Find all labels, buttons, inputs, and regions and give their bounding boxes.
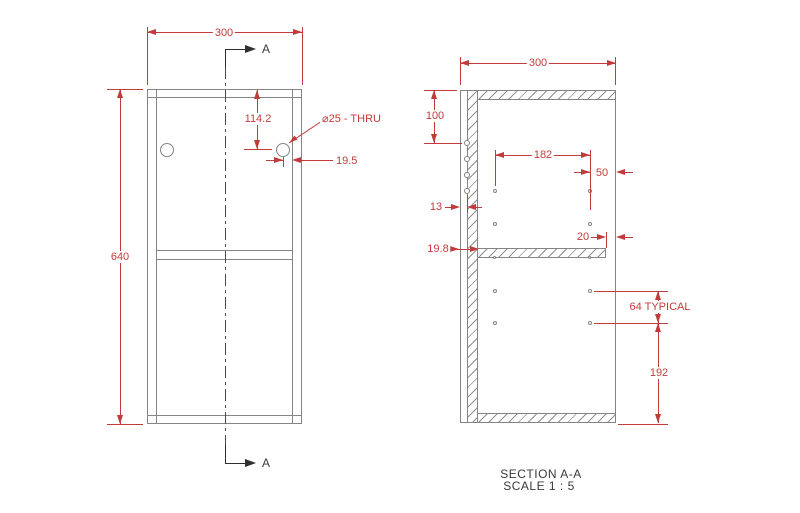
shelf-pin-hole bbox=[493, 321, 497, 325]
extension-line bbox=[302, 27, 303, 85]
arrowhead-up bbox=[655, 291, 661, 300]
extension-line bbox=[424, 143, 462, 144]
arrowhead-up bbox=[655, 323, 661, 332]
shelf-pin-hole bbox=[493, 189, 497, 193]
arrowhead-right bbox=[450, 246, 459, 252]
section-back-outer-line bbox=[460, 90, 461, 423]
arrowhead-right bbox=[581, 169, 590, 175]
shelf-pin-hole bbox=[588, 289, 592, 293]
dimension-tail-right bbox=[301, 160, 333, 161]
dimension-text: 192 bbox=[648, 367, 670, 379]
extension-line bbox=[606, 232, 607, 248]
section-arrow-bottom-stem bbox=[225, 463, 245, 464]
dimension-text: 19.8 bbox=[425, 243, 450, 255]
shelf-pin-hole bbox=[493, 222, 497, 226]
section-line-dashdot bbox=[225, 67, 226, 445]
dimension-text: 114.2 bbox=[243, 113, 274, 125]
shelf-pin-hole bbox=[588, 222, 592, 226]
arrowhead-up bbox=[431, 90, 437, 99]
arrowhead-right bbox=[607, 60, 616, 66]
section-caption-scale: SCALE 1 : 5 bbox=[503, 479, 575, 493]
extension-line bbox=[590, 150, 591, 210]
shelf-pin-hole bbox=[493, 289, 497, 293]
dimension-tail-right bbox=[625, 237, 633, 238]
section-arrow-bottom-head bbox=[245, 459, 256, 467]
arrowhead-left bbox=[495, 152, 504, 158]
callout-text: ⌀25 - THRU bbox=[320, 113, 383, 125]
shelf-underside-hole bbox=[493, 256, 496, 259]
arrowhead-right bbox=[451, 204, 460, 210]
section-arrow-bottom-label: A bbox=[261, 456, 271, 470]
section-bottom-panel-hatched bbox=[477, 413, 616, 423]
arrowhead-down bbox=[655, 414, 661, 423]
arrowhead-down bbox=[117, 415, 123, 424]
dimension-text: 13 bbox=[428, 201, 444, 213]
arrowhead-up bbox=[254, 90, 260, 99]
extension-line bbox=[618, 424, 668, 425]
dimension-text: 50 bbox=[594, 167, 610, 179]
arrowhead-left bbox=[147, 29, 156, 35]
dimension-text: 300 bbox=[527, 57, 549, 69]
section-arrow-top-head bbox=[245, 45, 256, 53]
extension-line bbox=[107, 424, 143, 425]
arrowhead-right bbox=[581, 152, 590, 158]
arrowhead-up bbox=[117, 89, 123, 98]
section-line-bottom-solid bbox=[225, 445, 226, 463]
dimension-text: 64 TYPICAL bbox=[628, 301, 693, 313]
dimension-tail-right bbox=[476, 207, 482, 208]
dimension-tail-right bbox=[625, 172, 633, 173]
shelf-underside-hole bbox=[588, 256, 591, 259]
extension-line bbox=[147, 27, 148, 85]
dimension-text: 640 bbox=[109, 251, 131, 263]
front-left-panel-inner-line bbox=[156, 89, 157, 424]
arrowhead-right bbox=[274, 157, 283, 163]
section-arrow-top-label: A bbox=[261, 42, 271, 56]
section-line-top-solid bbox=[225, 49, 226, 67]
extension-line bbox=[244, 149, 272, 150]
section-right-edge-line bbox=[615, 90, 616, 423]
arrowhead-left bbox=[292, 157, 301, 163]
side-panel-pin-hole bbox=[464, 140, 470, 146]
arrowhead-down bbox=[431, 134, 437, 143]
arrowhead-left bbox=[467, 204, 476, 210]
extension-line bbox=[424, 90, 457, 91]
dimension-text: 182 bbox=[532, 149, 554, 161]
section-shelf-hatched bbox=[477, 248, 606, 258]
side-panel-pin-hole bbox=[464, 188, 470, 194]
extension-line bbox=[107, 89, 143, 90]
extension-line bbox=[283, 157, 284, 167]
dimension-text: 20 bbox=[575, 231, 591, 243]
arrowhead-left bbox=[616, 169, 625, 175]
arrowhead-left bbox=[460, 60, 469, 66]
section-arrow-top-stem bbox=[225, 49, 245, 50]
side-panel-pin-hole bbox=[464, 172, 470, 178]
section-top-panel-hatched bbox=[477, 90, 616, 100]
shelf-pin-hole bbox=[588, 321, 592, 325]
arrowhead-right bbox=[597, 234, 606, 240]
arrowhead-left bbox=[616, 234, 625, 240]
dimension-text: 100 bbox=[424, 110, 446, 122]
arrowhead-down bbox=[254, 140, 260, 149]
arrowhead-right bbox=[293, 29, 302, 35]
engineering-drawing-canvas: A A 300 640 114.2 ⌀25 - THRU bbox=[0, 0, 800, 513]
front-left-hole bbox=[160, 143, 174, 157]
side-panel-pin-hole bbox=[464, 156, 470, 162]
arrowhead-down bbox=[655, 314, 661, 323]
dimension-text: 19.5 bbox=[334, 155, 359, 167]
dimension-text: 300 bbox=[213, 27, 235, 39]
arrowhead-right bbox=[470, 246, 479, 252]
